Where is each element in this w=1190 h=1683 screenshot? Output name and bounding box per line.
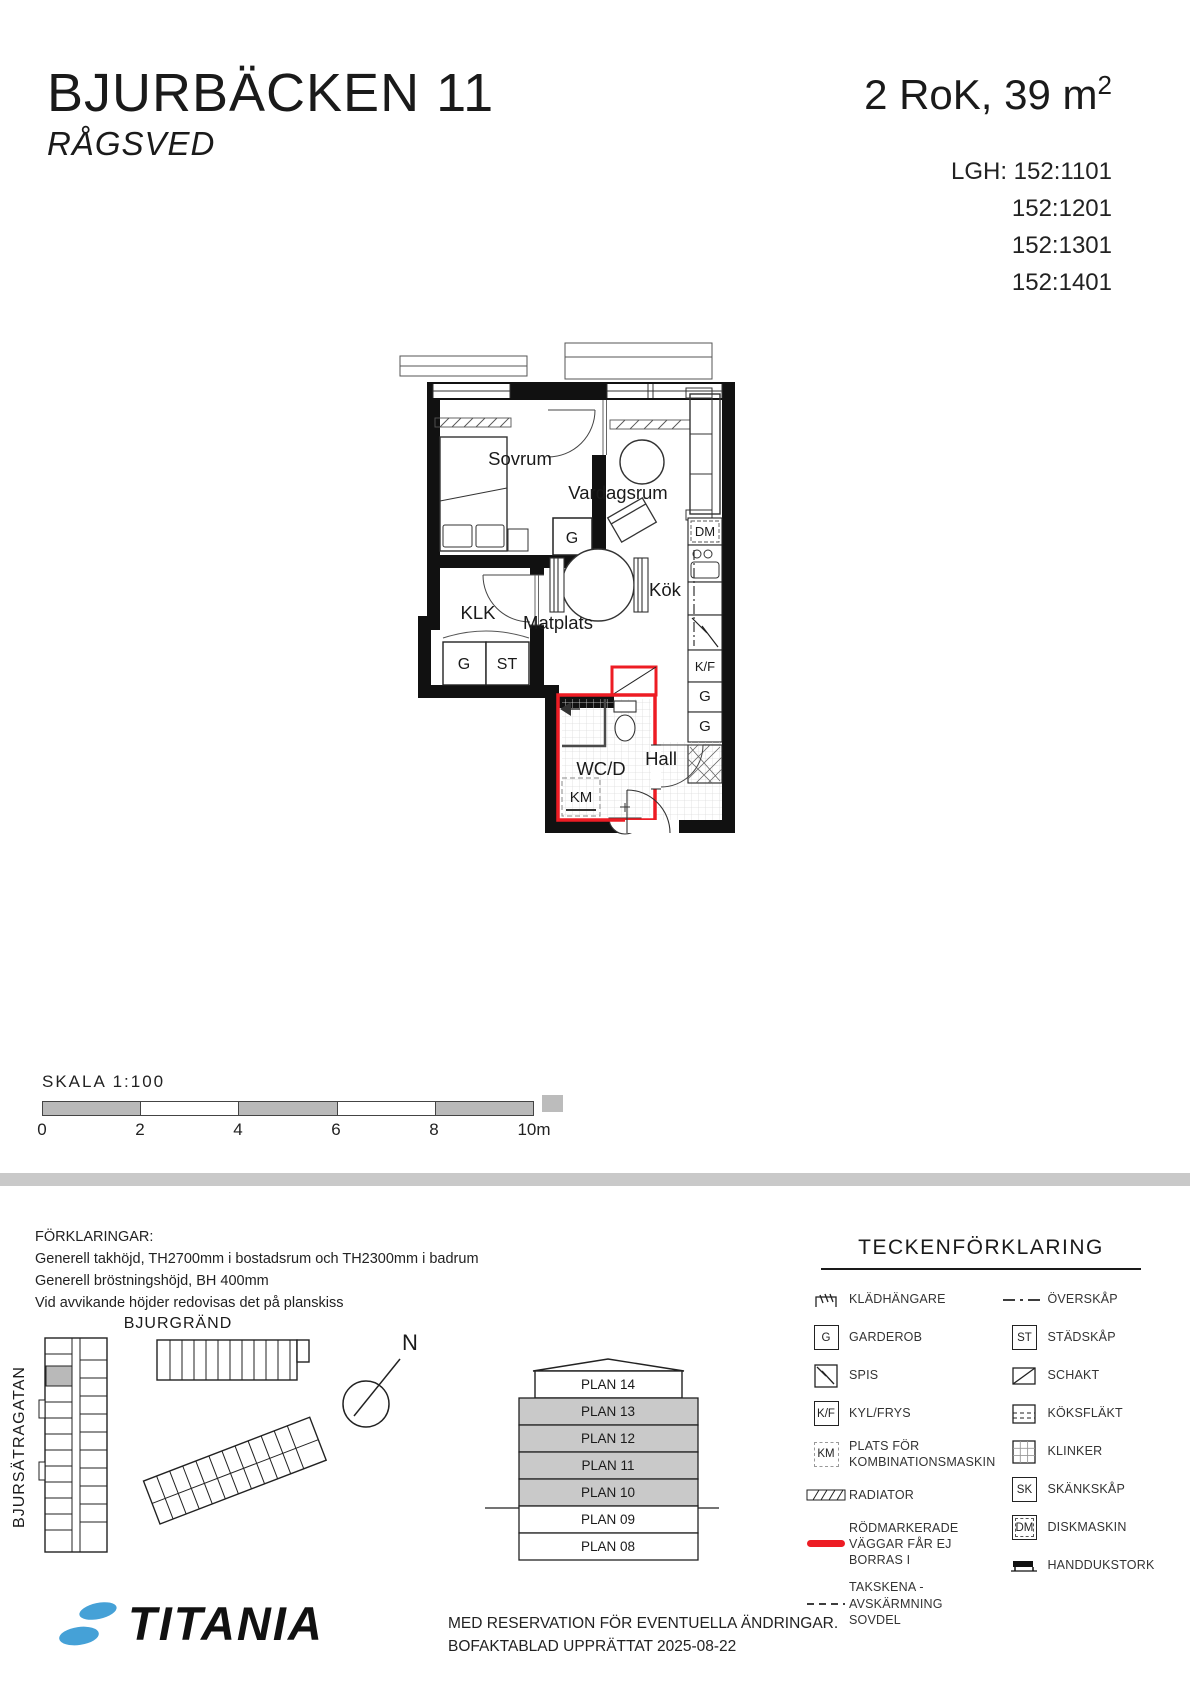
label-g-kok2: G: [699, 718, 711, 735]
legend-label: KYL/FRYS: [849, 1405, 911, 1421]
scale-segment: [338, 1102, 436, 1115]
scale-label: SKALA 1:100: [42, 1072, 534, 1092]
brand-logo-dots: [56, 1598, 122, 1650]
label-kf: K/F: [695, 659, 715, 674]
wardrobe-icon: G: [814, 1325, 839, 1350]
legend-label: VÄGGAR FÅR EJ BORRAS I: [849, 1536, 995, 1569]
scale-ticks: 0 2 4 6 8 10m: [42, 1120, 534, 1142]
legend-label: SKÄNKSKÅP: [1047, 1481, 1125, 1497]
dm-glyph: DM: [1016, 1522, 1034, 1534]
label-matplats: Matplats: [523, 612, 593, 633]
label-kok: Kök: [649, 579, 682, 600]
legend-label: SCHAKT: [1047, 1367, 1099, 1383]
notes-title: FÖRKLARINGAR:: [35, 1226, 479, 1248]
page-title: BJURBÄCKEN 11: [47, 64, 494, 123]
fridge-freezer-icon: K/F: [814, 1401, 839, 1426]
red-wall-icon: [803, 1540, 849, 1547]
north-label: N: [402, 1330, 418, 1355]
floor-label: PLAN 08: [581, 1539, 635, 1554]
legend-label: ÖVERSKÅP: [1047, 1291, 1117, 1307]
sovrum-door: [548, 410, 595, 457]
wardrobe-glyph: G: [822, 1332, 831, 1344]
legend-row: DM DISKMASKIN: [1001, 1514, 1159, 1541]
floor-label: PLAN 14: [581, 1377, 636, 1392]
stove-icon: [803, 1363, 849, 1389]
legend-row: KLÄDHÄNGARE: [803, 1286, 995, 1313]
scale-tick: 4: [233, 1120, 242, 1140]
floor-label: PLAN 12: [581, 1431, 635, 1446]
lgh-line: 152:1301: [864, 227, 1112, 264]
legend-label: DISKMASKIN: [1047, 1519, 1126, 1535]
legend-row: SPIS: [803, 1362, 995, 1389]
legend: TECKENFÖRKLARING KLÄDHÄNGARE G GARDEROB: [803, 1236, 1159, 1639]
radiator-icon: [803, 1488, 849, 1502]
legend-row: RADIATOR: [803, 1482, 995, 1509]
scale-tick: 6: [331, 1120, 340, 1140]
legend-row: HANDDUKSTORK: [1001, 1552, 1159, 1579]
label-vardagsrum: Vardagsrum: [568, 482, 667, 503]
label-klk: KLK: [461, 602, 497, 623]
legend-label: RADIATOR: [849, 1487, 914, 1503]
floor-label: PLAN 10: [581, 1485, 635, 1500]
apartment-size-sup: 2: [1098, 70, 1112, 100]
legend-label: TAKSKENA -: [849, 1579, 995, 1595]
fridge-glyph: K/F: [817, 1408, 835, 1420]
legend-divider: [821, 1268, 1141, 1270]
scale-bar: SKALA 1:100 0 2 4 6 8 10m: [42, 1072, 534, 1142]
label-g-klk: G: [458, 656, 470, 673]
roof: [533, 1359, 684, 1371]
legend-row: RÖDMARKERADEVÄGGAR FÅR EJ BORRAS I: [803, 1520, 995, 1569]
apartment-size: 2 RoK, 39 m2: [864, 70, 1112, 119]
dining-table: [562, 549, 634, 621]
brand-logo: TITANIA: [56, 1596, 324, 1651]
label-g-sovrum: G: [566, 530, 578, 547]
floor-label: PLAN 11: [581, 1458, 634, 1473]
legend-row: SK SKÄNKSKÅP: [1001, 1476, 1159, 1503]
legend-label: HANDDUKSTORK: [1047, 1557, 1154, 1573]
sofa: [686, 388, 720, 520]
building-north: [157, 1340, 309, 1380]
scale-bar-segments: [42, 1101, 534, 1116]
legend-row: KLINKER: [1001, 1438, 1159, 1465]
notes-line: Generell takhöjd, TH2700mm i bostadsrum …: [35, 1248, 479, 1270]
label-wcd: WC/D: [576, 758, 625, 779]
legend-label: AVSKÄRMNING SOVDEL: [849, 1596, 995, 1629]
divider-band: [0, 1173, 1190, 1186]
scale-segment: [239, 1102, 337, 1115]
apartment-size-text: 2 RoK, 39 m: [864, 71, 1097, 118]
label-km: KM: [570, 789, 593, 806]
balcony-railings: [400, 343, 712, 379]
radiators: [435, 418, 690, 429]
building-section: PLAN 14 PLAN 13 PLAN 12 PLAN 11 PLAN 10 …: [455, 1340, 735, 1575]
legend-row: G GARDEROB: [803, 1324, 995, 1351]
apartment-numbers: LGH: 152:1101 152:1201 152:1301 152:1401: [864, 153, 1112, 301]
highlighted-unit: [46, 1366, 72, 1386]
label-sovrum: Sovrum: [488, 448, 552, 469]
st-glyph: ST: [1017, 1332, 1032, 1344]
legend-right-column: ÖVERSKÅP ST STÄDSKÅP SCHAKT: [1001, 1286, 1159, 1639]
armchair: [620, 440, 664, 484]
apartment-info: 2 RoK, 39 m2 LGH: 152:1101 152:1201 152:…: [864, 70, 1112, 301]
legend-row: ST STÄDSKÅP: [1001, 1324, 1159, 1351]
ceiling-rail-icon: [803, 1600, 849, 1608]
label-st-klk: ST: [497, 656, 518, 673]
page-subtitle: RÅGSVED: [47, 125, 494, 163]
street-label-top: BJURGRÄND: [124, 1314, 233, 1332]
floor-label: PLAN 13: [581, 1404, 635, 1419]
tile-icon: [1001, 1439, 1047, 1465]
kitchen-fan-icon: [1001, 1402, 1047, 1426]
building-rotated: [144, 1417, 327, 1524]
overhead-cabinet-icon: [1001, 1296, 1047, 1304]
lgh-line: 152:1401: [864, 264, 1112, 301]
entry-gap: [625, 820, 679, 833]
gray-block: [542, 1095, 563, 1112]
legend-label: STÄDSKÅP: [1047, 1329, 1115, 1345]
scale-tick: 2: [135, 1120, 144, 1140]
legend-label: KOMBINATIONSMASKIN: [849, 1454, 995, 1470]
legend-row: ÖVERSKÅP: [1001, 1286, 1159, 1313]
lgh-prefix: LGH:: [951, 158, 1007, 185]
legend-label: PLATS FÖR: [849, 1438, 995, 1454]
floor-plan: Sovrum Vardagsrum KLK Matplats Kök WC/D …: [390, 338, 740, 850]
legend-label: SPIS: [849, 1367, 878, 1383]
lgh-line: LGH: 152:1101: [864, 153, 1112, 190]
scale-tick: 0: [37, 1120, 46, 1140]
sideboard-icon: SK: [1012, 1477, 1037, 1502]
legend-row: KM PLATS FÖRKOMBINATIONSMASKIN: [803, 1438, 995, 1471]
notes-line: Generell bröstningshöjd, BH 400mm: [35, 1270, 479, 1292]
disclaimer: MED RESERVATION FÖR EVENTUELLA ÄNDRINGAR…: [448, 1612, 838, 1658]
legend-row: KÖKSFLÄKT: [1001, 1400, 1159, 1427]
compass: [343, 1359, 400, 1427]
lgh-number: 152:1101: [1014, 158, 1112, 185]
label-g-kok1: G: [699, 688, 711, 705]
legend-label: KLÄDHÄNGARE: [849, 1291, 946, 1307]
cleaning-cabinet-icon: ST: [1012, 1325, 1037, 1350]
disclaimer-line: BOFAKTABLAD UPPRÄTTAT 2025-08-22: [448, 1635, 838, 1658]
notes-block: FÖRKLARINGAR: Generell takhöjd, TH2700mm…: [35, 1226, 479, 1314]
lgh-line: 152:1201: [864, 190, 1112, 227]
notes-line: Vid avvikande höjder redovisas det på pl…: [35, 1292, 479, 1314]
legend-label: RÖDMARKERADE: [849, 1520, 995, 1536]
scale-tick: 10m: [517, 1120, 550, 1140]
scale-tick: 8: [429, 1120, 438, 1140]
klk-curtain: [443, 631, 529, 638]
coat-hanger-icon: [803, 1290, 849, 1310]
km-glyph: KM: [817, 1448, 834, 1460]
street-label-left: BJURSÄTRAGATAN: [10, 1366, 28, 1528]
legend-label: KLINKER: [1047, 1443, 1102, 1459]
label-hall: Hall: [645, 748, 677, 769]
shaft-icon: [1001, 1364, 1047, 1388]
label-dm: DM: [695, 524, 715, 539]
disclaimer-line: MED RESERVATION FÖR EVENTUELLA ÄNDRINGAR…: [448, 1612, 838, 1635]
legend-label: KÖKSFLÄKT: [1047, 1405, 1122, 1421]
scale-segment: [436, 1102, 533, 1115]
sk-glyph: SK: [1017, 1484, 1032, 1496]
brand-name: TITANIA: [128, 1596, 324, 1651]
scale-segment: [43, 1102, 141, 1115]
title-block: BJURBÄCKEN 11 RÅGSVED: [47, 64, 494, 163]
legend-row: SCHAKT: [1001, 1362, 1159, 1389]
legend-left-column: KLÄDHÄNGARE G GARDEROB SPIS K/F KYL/FRYS: [803, 1286, 995, 1639]
legend-title: TECKENFÖRKLARING: [803, 1236, 1159, 1260]
toilet: [614, 701, 636, 741]
dishwasher-icon: DM: [1012, 1515, 1037, 1540]
legend-label: GARDEROB: [849, 1329, 922, 1345]
scale-segment: [141, 1102, 239, 1115]
washing-machine-icon: KM: [814, 1442, 839, 1467]
legend-row: K/F KYL/FRYS: [803, 1400, 995, 1427]
site-plan: BJURGRÄND BJURSÄTRAGATAN N: [10, 1312, 420, 1562]
floor-label: PLAN 09: [581, 1512, 635, 1527]
rotated-chair: [608, 498, 657, 542]
towel-dryer-icon: [1001, 1558, 1047, 1574]
